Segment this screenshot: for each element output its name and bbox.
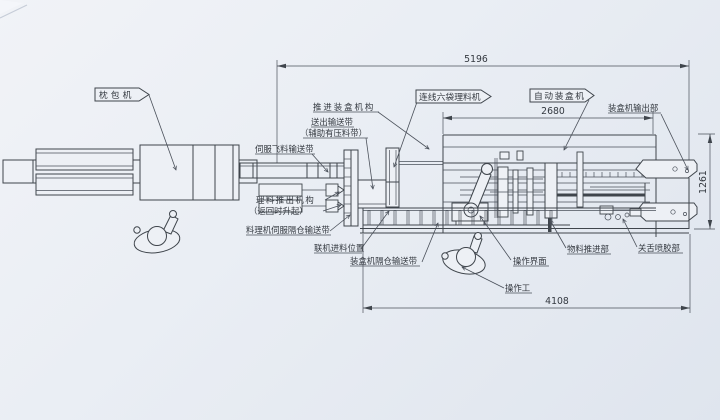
pillow-packer-label: 枕包机: [99, 89, 134, 101]
outfeed-belt-label: 送出输送带: [311, 117, 353, 127]
hmi-label: 操作界面: [513, 256, 547, 266]
pillow-packer: [3, 145, 257, 200]
cartoner-label: 自动装盒机: [534, 90, 586, 102]
collator-servo-belt-label: 料理机伺服隔仓输送带: [246, 225, 330, 235]
outlet-flap-bottom: [636, 203, 697, 221]
dim-floor-length: 4108: [545, 296, 569, 307]
infeed-conveyor: [240, 163, 344, 178]
collator-label: 连线六袋理料机: [419, 91, 481, 103]
collator-comb: [344, 150, 358, 226]
label-cartoner: 自动装盒机: [530, 89, 594, 102]
label-pillow-packer: 枕包机: [95, 88, 149, 101]
cartoner-compartment-belt-label: 装盒机隔仓输送带: [350, 256, 417, 266]
pushout-mech-label: 理料推出机构: [256, 195, 315, 205]
drawing-sheet: 5196 2680 4108 1261: [0, 0, 720, 420]
page-corner-fold: [0, 0, 27, 18]
dim-cartoner-length: 2680: [541, 106, 565, 117]
operator-figure-left: [132, 211, 181, 256]
dimension-1261: 1261: [694, 134, 715, 229]
glue-section-label: 关舌喷胶部: [638, 243, 680, 253]
outfeed-belt-note: （辅助有压料带）: [300, 128, 367, 138]
machine-layout-drawing: 5196 2680 4108 1261: [0, 0, 720, 420]
pushout-mech-note: （返回时升起）: [249, 206, 308, 216]
label-collator: 连线六袋理料机: [416, 90, 491, 103]
inline-feed-pos-label: 联机进料位置: [314, 243, 364, 253]
dim-overall-length: 5196: [464, 54, 488, 65]
cartoner-outlet-label: 装盒机输出部: [608, 103, 658, 113]
push-mechanism-label: 推进装盒机构: [313, 102, 375, 112]
outfeed-box: [358, 148, 443, 208]
dim-depth: 1261: [698, 170, 709, 194]
operator-figure-right: [441, 233, 488, 278]
material-push-label: 物料推进部: [567, 244, 609, 254]
operator-label: 操作工: [505, 283, 530, 293]
servo-fly-belt-label: 伺服飞料输送带: [255, 144, 314, 154]
